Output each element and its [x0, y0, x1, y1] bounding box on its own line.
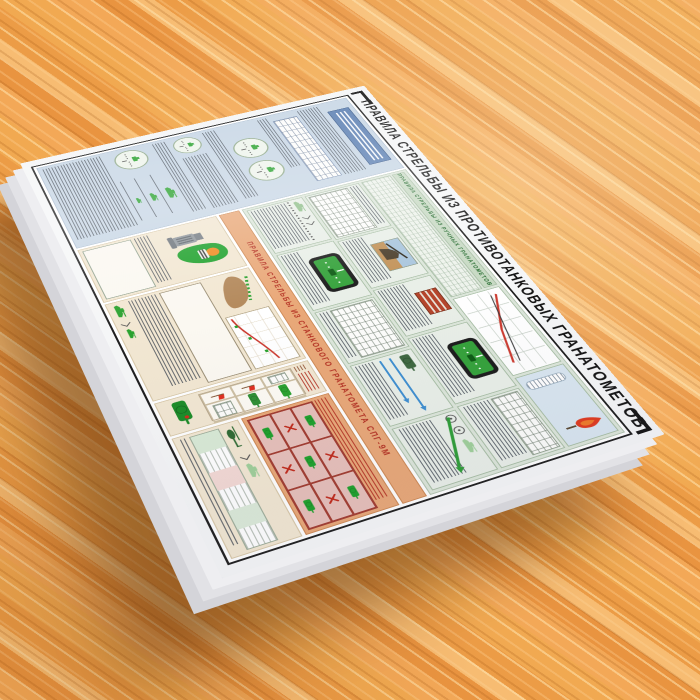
tank-silhouette-pale [242, 460, 263, 481]
tank-silhouette [124, 327, 140, 341]
flame-icon [557, 408, 611, 439]
x-mark [283, 423, 296, 432]
tank-silhouette-pale [459, 436, 482, 456]
tank-icon [344, 483, 364, 501]
photo-scene: ПРАВИЛА СТРЕЛЬБЫ ИЗ ПРОТИВОТАНКОВЫХ ГРАН… [0, 0, 700, 700]
tank-icon [302, 414, 321, 430]
x-mark [325, 451, 339, 461]
chevron-icon [306, 220, 315, 225]
tank-silhouette [111, 303, 130, 321]
chevron-icon [121, 320, 131, 326]
thermometer-icon [524, 371, 568, 391]
tank-icon [299, 497, 319, 515]
chevron-icon [240, 453, 251, 460]
tank-icon [301, 454, 321, 471]
tank-top-view [166, 397, 201, 429]
chevron-icon [302, 214, 311, 219]
x-mark [282, 464, 296, 474]
tank-icon [259, 426, 278, 443]
x-mark [325, 494, 339, 504]
launcher-emblem [154, 225, 238, 275]
tank-silhouette [134, 196, 144, 204]
